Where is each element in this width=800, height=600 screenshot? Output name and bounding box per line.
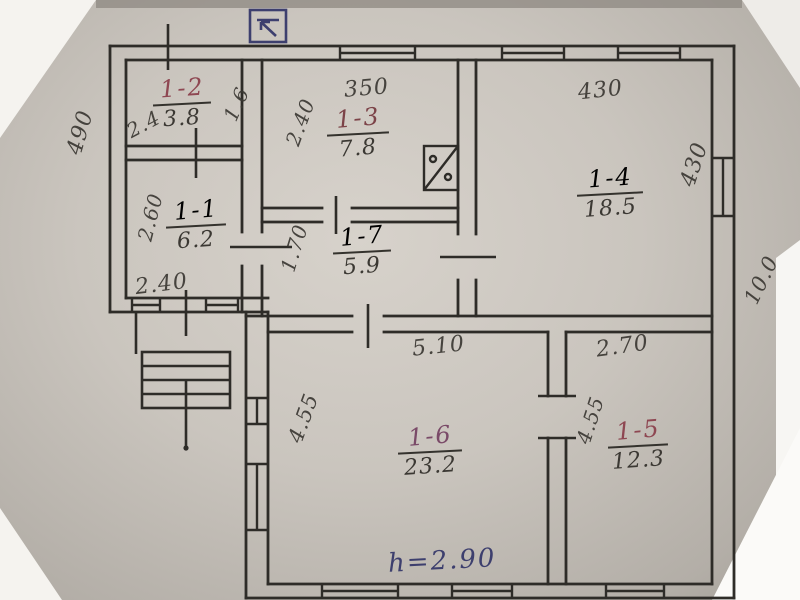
room-label-1-1: 1-1 6.2	[166, 198, 226, 252]
room-label-1-7: 1-7 5.9	[333, 224, 391, 278]
room-number: 1-4	[587, 164, 633, 191]
room-number: 1-3	[335, 104, 382, 132]
room-label-1-6: 1-6 23.2	[398, 424, 462, 478]
floor-plan-photo: 1-2 3.8 1-1 6.2 1-3 7.8 1-4 18.5 1-7 5.9…	[0, 0, 800, 600]
room-area: 5.9	[342, 254, 382, 280]
room-number: 1-7	[339, 222, 386, 250]
room-number: 1-1	[173, 196, 220, 224]
photo-edges	[0, 0, 800, 600]
room-number: 1-5	[615, 416, 662, 444]
room-number: 1-2	[159, 74, 205, 101]
height-note: h=2.90	[387, 543, 497, 579]
floorplan-linework	[0, 0, 800, 600]
room-area: 18.5	[583, 196, 637, 223]
room-label-1-4: 1-4 18.5	[577, 166, 643, 220]
room-area: 23.2	[403, 454, 457, 481]
north-arrow-icon	[250, 10, 286, 42]
room-label-1-3: 1-3 7.8	[327, 106, 389, 160]
room-area: 6.2	[176, 228, 216, 254]
dim-1-4-top: 430	[577, 76, 624, 106]
room-area: 7.8	[338, 136, 378, 162]
stove-icon	[424, 146, 458, 190]
room-area: 3.8	[162, 106, 202, 132]
room-label-1-5: 1-5 12.3	[608, 418, 668, 472]
room-number: 1-6	[407, 422, 454, 450]
dim-1-3-top: 350	[343, 74, 390, 103]
window-symbols	[132, 46, 734, 598]
room-area: 12.3	[611, 448, 665, 475]
porch-steps-icon	[136, 312, 230, 451]
